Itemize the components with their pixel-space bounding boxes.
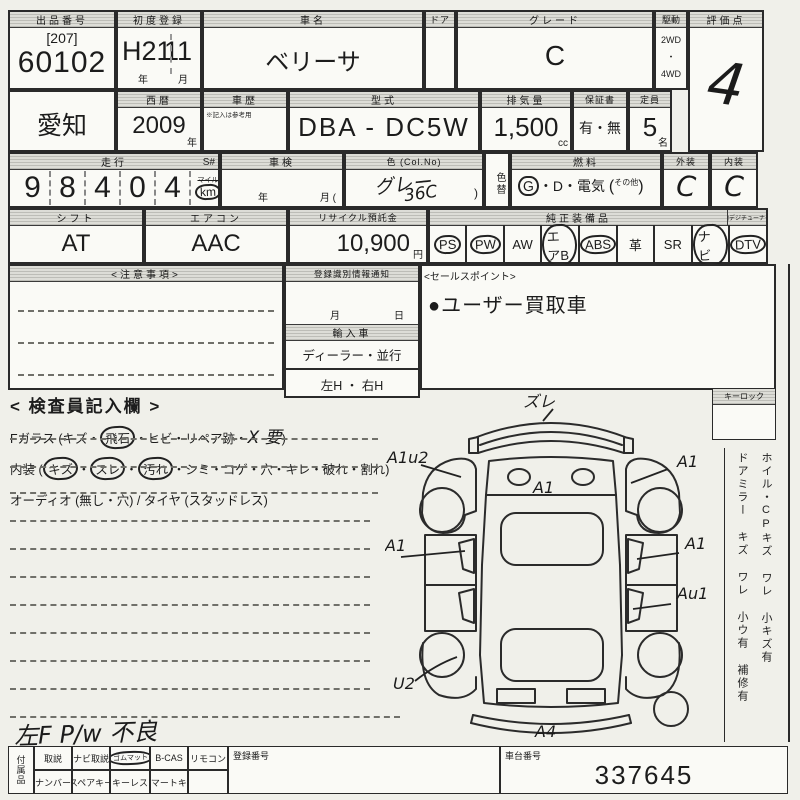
displacement-value: 1,500 [482,112,570,143]
color-change-label: 色替 [492,172,507,208]
left-rear-wheel [420,633,464,677]
annotation-right-rear: Au1 [676,584,708,603]
notes-line [18,374,274,376]
equipment-cell: 純正装備品 地デジチューナー PS PW AW エアB ABS 革 SR ナビ … [428,208,768,264]
model-code-cell: 型式 DBA - DC5W [288,90,480,152]
exterior-grade-header: 外装 [664,154,708,170]
car-name-header: 車名 [204,12,422,28]
region-value: 愛知 [10,106,114,142]
right-rear-door-window [628,589,643,623]
front-bumper-outline [477,423,625,437]
year-cell: 西暦 2009 年 [116,90,202,152]
equip-airbag: エアB [542,223,579,266]
footer-keyless-cell: キーレス [110,770,150,794]
annotation-front-bumper: ズレ [523,393,555,411]
footer-spare-key-cell: スペアキー [72,770,110,794]
right-front-door-window [628,539,643,573]
fuel-header: 燃料 [512,154,660,170]
equip-abs: ABS [579,234,616,254]
exterior-grade-cell: 外装 C [662,152,710,208]
notes-cell: <注意事項> [8,264,284,390]
mileage-unit-mile: マイル [195,177,221,184]
inspector-section: < 検査員記入欄 > Fガラス (キズ・飛石・ヒビ・リペア跡・X 要) 内装 (… [10,392,420,742]
right-doors [626,535,677,631]
reg-info-cell: 登録識別情報通知 月 日 輸入車 ディーラー・並行 左H ・ 右H [284,264,420,398]
drive-dot: ・ [656,49,686,66]
equip-leather: 革 [629,235,642,254]
first-reg-divider [170,34,172,74]
color-change-cell: 色替 [484,152,510,208]
sales-point-header: <セールスポイント> [422,266,774,283]
equip-ps: PS [434,235,462,255]
drive-header: 駆動 [656,12,686,28]
warranty-header: 保証書 [574,92,626,108]
annotation-right-door: A1 [684,534,706,553]
footer-spare-key: スペアキー [72,776,110,789]
inspector-dash-line [10,548,370,550]
recycle-fee-unit: 円 [413,246,423,261]
left-rear-door-window [459,589,474,623]
car-damage-diagram: ズレ A1u2 A1 A1 A1 A1 Au1 U2 A4 [385,393,720,743]
region-cell: 愛知 [8,90,116,152]
aircon-header: エアコン [146,210,286,226]
displacement-cell: 排気量 1,500 cc [480,90,572,152]
import-header: 輸入車 [286,325,418,341]
footer-keyless: キーレス [112,776,148,789]
footer-number-plate-cell: ナンバー [34,770,72,794]
interior-line: 内装 (キズ・スレ・汚れ・シミ・コゲ・穴・キレ・破れ・割れ) [10,457,420,480]
chassis-number-value: 337645 [595,760,694,791]
annotation-line [401,551,465,557]
nozzle-left [508,469,530,485]
lot-number: 60102 [10,46,114,80]
chassis-number-cell: 車台番号 337645 [500,746,788,794]
footer-smart-key: スマートキー [150,776,188,789]
notes-line [18,342,274,344]
equip-sr: SR [664,237,682,252]
inspector-title: < 検査員記入欄 > [10,392,420,417]
annotation-line [637,553,679,559]
left-doors [425,535,476,631]
sales-point-text: ●ユーザー買取車 [422,283,774,318]
equip-dtv: DTV [730,234,767,254]
keylock-header: キーロック [713,389,775,405]
inspector-dash-line [10,466,378,468]
sidebar-text-mirror: ドアミラー キズ ワレ 小ウ有 補修有 [734,452,750,740]
recycle-fee-header: リサイクル預託金 [290,210,426,226]
annotation-rf-fender: A1 [676,452,698,471]
history-cell: 車歴 ※記入は参考用 [202,90,288,152]
capacity-cell: 定員 5 名 [628,90,672,152]
shift-cell: シフト AT [8,208,144,264]
left-front-fender [422,459,476,533]
interior-grade-cell: 内装 C [710,152,758,208]
auction-sheet: 出品番号 [207] 60102 初度登録 H21 11 年 月 車名 ベリーサ… [0,0,800,800]
notes-header: <注意事項> [10,266,282,282]
reg-info-month: 月 [330,307,340,322]
annotation-left-rear: U2 [393,674,415,693]
footer-empty-cell [188,770,228,794]
door-cell: ドア [424,10,456,90]
mileage-s-label: S# [203,157,215,168]
inspector-dash-line [10,492,378,494]
plate-lamp-left [497,689,535,703]
interior-circled-yogore: 汚れ [137,456,173,480]
footer-smart-key-cell: スマートキー [150,770,188,794]
shaken-unit-year: 年 [258,189,268,204]
interior-circled-sure: スレ [90,456,126,480]
first-reg-unit-year: 年 [138,71,148,86]
mileage-digit: 4 [156,171,191,205]
rear-window [501,629,603,681]
registration-number-cell: 登録番号 [228,746,500,794]
sidebar-text-wheel: ホイル・CPキズ ワレ 小キズ有 [758,452,774,740]
mileage-digit: 0 [121,171,156,205]
import-options: ディーラー・並行 [286,341,418,370]
first-reg-unit-month: 月 [178,71,188,86]
inspector-dash-line [10,632,370,634]
shift-header: シフト [10,210,142,226]
lot-number-header: 出品番号 [10,12,114,28]
annotation-line [633,604,671,609]
notes-line [18,310,274,312]
windshield [501,513,603,565]
first-registration-cell: 初度登録 H21 11 年 月 [116,10,202,90]
warranty-cell: 保証書 有・無 [572,90,628,152]
capacity-header: 定員 [630,92,670,108]
inspector-dash-line [10,604,370,606]
drive-cell: 駆動 2WD ・ 4WD [654,10,688,90]
plate-lamp-right [567,689,605,703]
interior-circled-kizu: キズ [42,456,78,480]
sales-point-cell: <セールスポイント> ●ユーザー買取車 [420,264,776,390]
mileage-digit: 4 [86,171,121,205]
fuel-other: その他 [614,178,638,187]
page-edge-line [788,264,790,742]
aircon-cell: エアコン AAC [144,208,288,264]
reg-info-header: 登録識別情報通知 [286,266,418,282]
right-front-fender [626,459,680,533]
right-front-wheel [638,488,682,532]
score-value: 4 [686,45,767,122]
equip-aw: AW [512,237,532,252]
mileage-digit: 9 [16,171,51,205]
footer-navi-manual: ナビ取説 [73,752,109,765]
footer-bcas-cell: B-CAS [150,746,188,770]
mileage-header: 走行 [10,154,218,170]
shaken-cell: 車検 年 月 ( [220,152,344,208]
footer-rubber-mat-cell: ゴムマット [110,746,150,770]
interior-grade-value: C [711,169,756,204]
footer-rubber-mat: ゴムマット [110,750,150,766]
score-header: 評価点 [690,12,762,28]
car-name-value: ベリーサ [204,42,422,77]
inspector-dash-line [10,660,370,662]
warranty-options: 有・無 [574,118,626,138]
footer-bcas: B-CAS [155,753,183,763]
inspector-stamp-circle [654,692,688,726]
first-reg-month: 11 [164,36,192,67]
grade-value: C [458,40,652,72]
equip-navi: ナビ [692,223,729,266]
color-header: 色 (Col.No) [346,154,482,170]
interior-grade-header: 内装 [712,154,756,170]
inspector-dash-line [10,688,370,690]
displacement-unit: cc [558,138,568,149]
displacement-header: 排気量 [482,92,570,108]
aircon-value: AAC [146,230,286,258]
shaken-unit-month: 月 ( [320,189,336,204]
fuel-close-paren: ) [638,178,643,195]
color-close-paren: ) [474,186,478,200]
keylock-cell: キーロック [712,388,776,440]
score-cell: 評価点 4 [688,10,764,152]
equipment-header: 純正装備品 [430,210,728,226]
footer-number-plate: ナンバー [35,776,71,789]
footer-remote: リモコン [190,752,226,765]
right-rear-quarter [626,643,680,698]
fuel-cell: 燃料 G・D・電気 (その他) [510,152,662,208]
recycle-fee-cell: リサイクル預託金 10,900 円 [288,208,428,264]
car-name-cell: 車名 ベリーサ [202,10,424,90]
mileage-digit: 8 [51,171,86,205]
chassis-number-label: 車台番号 [505,749,541,762]
shift-value: AT [10,230,142,258]
history-header: 車歴 [204,92,286,108]
capacity-unit: 名 [658,134,668,149]
annotation-rear-bumper: A4 [534,722,556,741]
fuel-rest: ・D・電気 [539,178,605,194]
fuel-gasoline: G [518,176,540,197]
drive-2wd: 2WD [656,32,686,49]
year-header: 西暦 [118,92,200,108]
footer-manual: 取説 [44,752,62,765]
recycle-fee-value: 10,900 [337,230,410,258]
grade-cell: グレード C [456,10,654,90]
grade-header: グレード [458,12,652,28]
left-front-door-window [459,539,474,573]
inspector-dash-line [10,438,378,440]
mileage-unit-km: km [195,183,222,200]
history-note: ※記入は参考用 [206,109,252,119]
inspector-dash-line [10,520,370,522]
hood-sides [482,495,620,565]
lot-bracket: [207] [10,30,114,46]
annotation-hood: A1 [532,478,554,497]
inspector-dash-line [10,576,370,578]
right-rear-wheel [638,633,682,677]
annotation-line [631,469,668,483]
year-unit: 年 [187,134,197,149]
mileage-cell: 走行 S# 9 8 4 0 4 マイル km [8,152,220,208]
color-cell: 色 (Col.No) グレー 36C ) [344,152,484,208]
exterior-grade-value: C [663,169,709,205]
footer-side-label: 付属品 [15,755,28,785]
sidebar-divider [724,448,725,742]
registration-number-label: 登録番号 [229,747,269,762]
tuner-header: 地デジチューナー [728,210,766,226]
model-code-header: 型式 [290,92,478,108]
fglass-line: Fガラス (キズ・飛石・ヒビ・リペア跡・X 要) [10,423,420,449]
annotation-left-door: A1 [385,536,406,555]
footer-remote-cell: リモコン [188,746,228,770]
nozzle-right [572,469,594,485]
color-code: 36C [403,182,439,206]
reg-info-day: 日 [394,307,404,322]
first-registration-header: 初度登録 [118,12,200,28]
door-header: ドア [426,12,454,28]
equip-pw: PW [469,234,501,254]
lot-number-cell: 出品番号 [207] 60102 [8,10,116,90]
left-front-wheel [420,488,464,532]
model-code-value: DBA - DC5W [290,112,478,143]
shaken-header: 車検 [222,154,342,170]
footer-side-label-cell: 付属品 [8,746,34,794]
footer-navi-manual-cell: ナビ取説 [72,746,110,770]
annotation-lf-fender: A1u2 [386,448,428,467]
footer-manual-cell: 取説 [34,746,72,770]
drive-4wd: 4WD [656,66,686,83]
